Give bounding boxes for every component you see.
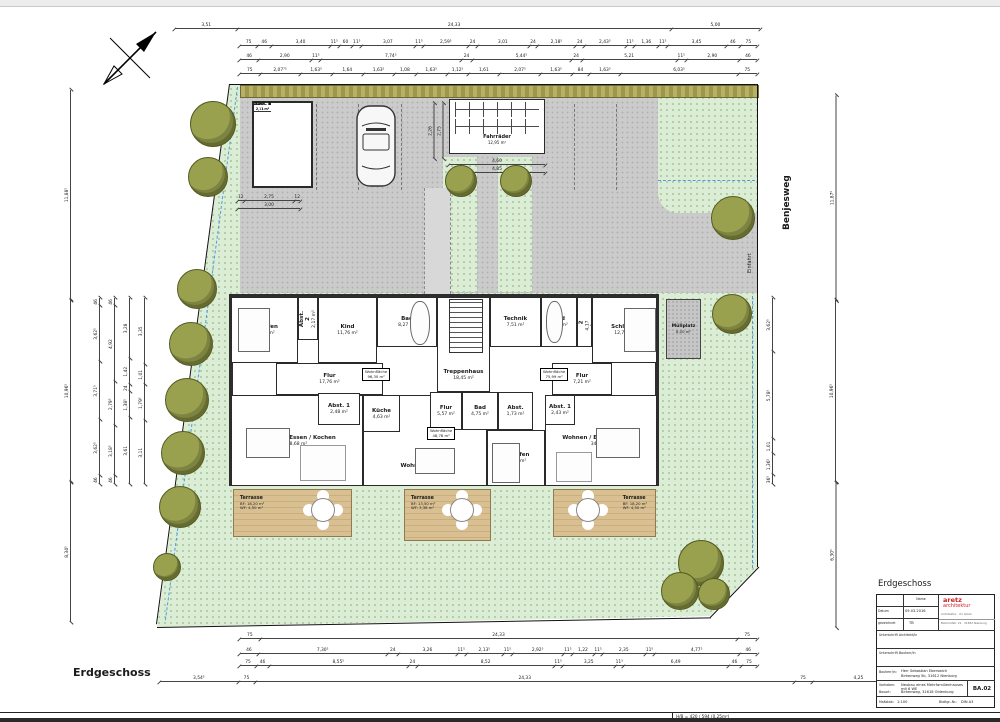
dimension-value: 75: [794, 676, 812, 683]
dimension-value: 1,63⁵: [540, 68, 571, 75]
room-area: 18,45 m²: [453, 376, 474, 381]
room: Abst. 2 4,17 m²: [577, 297, 592, 347]
tb-client-value2: Birkenweg 5b, 31612 Nienburg: [901, 674, 957, 678]
living-area-box: Wohnfläche 75,99 m²: [540, 368, 568, 381]
dimension-value: 75: [738, 68, 758, 75]
room-area: 4,75 m²: [471, 412, 489, 417]
furniture-item: [246, 428, 290, 458]
dimension-value: 7,74⁵: [320, 54, 461, 61]
terrace: Terrasse BF: 18,20 m² WF: 4,50 m²: [233, 489, 352, 537]
room-label-wrap: Abst. 1,73 m²: [507, 405, 525, 417]
dimension-value: 75: [741, 660, 757, 667]
living-area-value: 48,78 m²: [430, 434, 452, 439]
dimension-value: 11⁵: [311, 54, 320, 61]
boundary-top: [229, 84, 758, 85]
terrace-wf: WF: 4,50 m²: [240, 506, 264, 511]
tb-name-header: Name: [903, 597, 939, 601]
dimension-value: 1,01: [139, 365, 146, 385]
dimension-value: 10,96⁵: [830, 300, 837, 482]
dimension-chain: 2,75: [436, 103, 444, 158]
dimension-chain: 3,111,79⁵1,013,35: [138, 298, 146, 484]
room-label-wrap: Abst. 1 2,48 m²: [328, 403, 350, 415]
dimension-value: 46: [109, 298, 116, 306]
dimension-value: 4,77⁵: [654, 648, 739, 655]
room-label-wrap: Treppenhaus 18,45 m²: [444, 369, 484, 381]
bike-shelter: Fahrräder 12,95 m²: [449, 99, 545, 154]
room-name: Flur: [440, 405, 452, 411]
room: Küche 4,63 m²: [363, 395, 400, 432]
dimension-value: 75: [240, 633, 260, 640]
dimension-value: 1,63⁵: [300, 68, 331, 75]
room-label-wrap: Technik 7,51 m²: [504, 316, 527, 328]
setback-line-patch: [658, 180, 755, 181]
dimension-value: 11⁵: [554, 660, 562, 667]
room: Abst. 1 2,43 m²: [545, 395, 575, 425]
stall-divider-line: [316, 104, 317, 190]
dimension-value: 1,01: [767, 439, 774, 454]
dimension-chain: 463,18⁵2,79⁵4,9246: [108, 298, 116, 484]
room: Abst. 1,73 m²: [498, 392, 533, 430]
dimension-value: 11⁵: [415, 40, 424, 47]
room: Abst. 1 2,48 m²: [318, 393, 360, 425]
room-area: 4,63 m²: [373, 415, 391, 420]
dimension-value: 24,33: [260, 633, 738, 640]
dimension-value: 46: [257, 40, 271, 47]
dimension-chain: 7524,3375: [240, 632, 757, 640]
dimension-value: 8,34⁵: [65, 482, 72, 622]
terrace-table-icon: [576, 498, 600, 522]
title-block-heading: Erdgeschoss: [878, 579, 931, 589]
dimension-value: 2,75: [244, 195, 295, 202]
terrace-table-icon: [311, 498, 335, 522]
dimension-value: 3,11: [139, 421, 146, 484]
dimension-value: 3,26: [398, 648, 457, 655]
dimension-value: 3,45: [667, 40, 726, 47]
tree-icon: [698, 578, 730, 610]
room: Technik 7,51 m²: [490, 297, 541, 347]
dimension-value: 11⁵: [626, 40, 635, 47]
dimension-chain: 3,00: [238, 202, 300, 210]
tb-format-value: DIN A3: [961, 700, 973, 704]
dimension-value: 2,59⁵: [423, 40, 468, 47]
room-name: Abst. 1: [549, 404, 571, 410]
bike-row-icons: [455, 119, 539, 134]
dimension-value: 2,79⁵: [109, 382, 116, 426]
dimension-chain: 3,5124,335,00: [175, 22, 760, 30]
furniture-item: [415, 448, 455, 474]
dimension-value: 2,35: [602, 648, 645, 655]
tb-date-label: Datum: [878, 609, 889, 613]
tb-client-row: Bauherr/in: Herr Sebastian Eberswich Bir…: [877, 667, 995, 681]
plan-caption: Erdgeschoss: [73, 666, 151, 679]
dimension-value: 11⁵: [677, 54, 686, 61]
dimension-value: 3,00: [238, 203, 300, 210]
dimension-value: 1,63⁵: [363, 68, 394, 75]
dimension-value: 46: [109, 476, 116, 484]
dimension-value: 12: [294, 195, 300, 202]
tb-line: [877, 618, 939, 619]
logo-text-2: architektur: [943, 604, 970, 610]
room-area: 7,21 m²: [573, 380, 591, 385]
dimension-value: 3,62⁵: [94, 420, 101, 476]
dimension-value: 6,30⁵: [830, 482, 837, 627]
room-area: 5,57 m²: [437, 412, 455, 417]
dimension-value: 24: [408, 660, 418, 667]
dimension-value: 2,92⁵: [512, 648, 564, 655]
dimension-value: 3,62⁵: [94, 306, 101, 362]
walkway-edge: [424, 188, 425, 294]
dimension-value: 60: [339, 40, 353, 47]
dimension-chain: 10,96⁵: [64, 300, 72, 482]
dimension-value: 1,63⁵: [589, 68, 620, 75]
room: Kind 11,76 m²: [318, 297, 377, 363]
dimension-chain: 463,62⁵3,71⁵3,62⁵46: [93, 298, 101, 484]
storage-unit-area: 2,11 m²: [256, 108, 269, 112]
dimension-value: 3,54⁵: [160, 676, 238, 683]
dimension-value: 46: [94, 298, 101, 306]
title-block-table: Name Datum 09.03.2016 gezeichnet TB aret…: [876, 594, 995, 708]
tree-icon: [711, 196, 755, 240]
room-area: 4,17 m²: [586, 314, 592, 330]
tb-sig1-label: Unterschrift Architekt/in: [879, 633, 917, 637]
terrace-info: Terrasse BF: 18,20 m² WF: 4,50 m²: [623, 496, 647, 511]
driveway-label: Einfahrt: [747, 233, 753, 273]
dimension-value: 1,38⁵: [124, 392, 131, 418]
dimension-value: 46: [256, 660, 269, 667]
dimension-chain: 467,30⁵243,2611⁵2,13⁵11⁵2,92⁵11⁵1,2211⁵2…: [240, 647, 757, 655]
room-name: Flur: [576, 373, 588, 379]
window-bottom-strip: [0, 718, 1000, 722]
dimension-value: 1,42: [124, 359, 131, 385]
tree-icon: [661, 572, 699, 610]
bike-shelter-area: 12,95 m²: [450, 140, 544, 145]
dimension-value: 24,33: [237, 23, 670, 30]
tb-date-value: 09.03.2016: [905, 609, 926, 613]
dimension-chain: 8,34⁵: [64, 482, 72, 622]
room-area: 11,76 m²: [337, 331, 358, 336]
tree-icon: [445, 165, 477, 197]
dimension-value: 11,87⁵: [830, 95, 837, 300]
storage-block: Abst. 1 2,11 m² Abst. 2 2,11 m² Abst. 3 …: [252, 101, 313, 188]
logo-subline: Architektur · Ihr Glück: [941, 613, 972, 616]
tb-line: [877, 606, 939, 607]
dimension-chain: 75463,4011⁵6011⁵3,0711⁵2,59⁵243,01242,18…: [240, 39, 757, 47]
storage-unit: Abst. 6 2,11 m²: [254, 103, 271, 111]
dimension-value: 6,49: [623, 660, 728, 667]
tb-line: [903, 595, 904, 631]
dimension-value: 24: [387, 648, 398, 655]
tree-icon: [159, 486, 201, 528]
room-name: Abst. 2: [577, 314, 585, 330]
dimension-value: 4,92: [109, 306, 116, 383]
furniture-item: [624, 308, 656, 352]
dimension-value: 3,71⁵: [94, 362, 101, 420]
dimension-value: 75: [240, 40, 257, 47]
room-name: Technik: [504, 316, 527, 322]
dimension-value: 5,00: [671, 23, 760, 30]
dimension-value: 3,61: [124, 418, 131, 484]
dimension-value: 1,36: [634, 40, 658, 47]
stall-divider-line: [401, 104, 402, 190]
room-area: 1,73 m²: [507, 412, 525, 417]
furniture-item: [410, 301, 430, 345]
dimension-value: 75: [240, 68, 260, 75]
room-name: Abst. 1: [328, 403, 350, 409]
dimension-chain: 3,54⁵7524,33754,25: [160, 675, 905, 683]
tree-icon: [161, 431, 205, 475]
dimension-value: 1,63⁵: [416, 68, 447, 75]
furniture-item: [238, 308, 270, 352]
page-footer-line: [0, 712, 1000, 713]
terrace-wf: WF: 3,38 m²: [411, 506, 435, 511]
tb-sig2-label: Unterschrift Bauherr/in: [879, 651, 916, 655]
tb-client-label: Bauherr/in:: [879, 670, 897, 674]
dimension-chain: 10,96⁵: [829, 300, 837, 482]
room: Abst. 2 2,17 m²: [298, 297, 318, 340]
room-label-wrap: Abst. 2 2,17 m²: [299, 310, 317, 328]
entrance-walkway: [424, 188, 450, 295]
tree-icon: [188, 157, 228, 197]
tree-icon: [177, 269, 217, 309]
dimension-value: 5,78⁵: [767, 352, 774, 439]
dimension-value: 11⁵: [563, 648, 572, 655]
room-label-wrap: Flur 5,57 m²: [437, 405, 455, 417]
dimension-value: 8,52: [417, 660, 554, 667]
dimension-value: 1,79⁵: [139, 385, 146, 421]
dimension-chain: 122,7512: [238, 194, 300, 202]
room-label-wrap: Flur 7,21 m²: [573, 373, 591, 385]
dimension-value: 46: [728, 660, 741, 667]
room-area: 2,17 m²: [312, 310, 317, 328]
floor-plan-sheet: Abst. 1 2,11 m² Abst. 2 2,11 m² Abst. 3 …: [0, 0, 1000, 722]
living-area-value: 96,30 m²: [365, 375, 387, 380]
room-name: Abst.: [507, 405, 523, 411]
tb-line: [939, 619, 995, 620]
furniture-item: [596, 428, 640, 458]
furniture-item: [492, 443, 520, 483]
dimension-chain: 462,9011⁵7,74⁵245,44⁵245,2111⁵2,9046: [240, 53, 757, 61]
dimension-chain: 752,07⁷⁵1,63⁵1,641,63⁵1,081,63⁵1,12⁵1,61…: [240, 67, 757, 75]
dimension-value: 1,61: [468, 68, 499, 75]
tb-project-row: Vorhaben: Neubau eines Mehrfamilienhause…: [877, 681, 995, 697]
dimension-value: 75: [238, 676, 256, 683]
furniture-item: [556, 452, 592, 482]
tree-icon: [712, 294, 752, 334]
tree-icon: [165, 378, 209, 422]
dimension-chain: 36⁵1,36⁵1,015,78⁵3,62⁵: [766, 298, 774, 484]
dimension-value: 1,22: [572, 648, 593, 655]
room-label-wrap: Abst. 1 2,43 m²: [549, 404, 571, 416]
logo-address: Bahnhofstr. 21 · 31582 Nienburg: [941, 622, 987, 625]
terrace: Terrasse BF: 13,50 m² WF: 3,38 m²: [404, 489, 491, 541]
terrace-info: Terrasse BF: 13,50 m² WF: 3,38 m²: [411, 496, 435, 511]
dimension-chain: 11,88⁵: [64, 90, 72, 300]
dimension-chain: 2,26: [427, 103, 435, 158]
tb-project-label: Vorhaben:: [879, 683, 895, 687]
tb-signature-client: Unterschrift Bauherr/in: [877, 649, 995, 667]
dimension-value: 2,07⁷⁵: [260, 68, 301, 75]
dimension-value: 8,55⁵: [269, 660, 408, 667]
room-name: Küche: [372, 408, 391, 414]
room-name: Treppenhaus: [444, 369, 484, 375]
room-area: 2,43 m²: [551, 411, 569, 416]
dimension-value: 24: [571, 54, 582, 61]
tb-format-label: Blattgr.-Nr.:: [939, 700, 957, 704]
terrace: Terrasse BF: 18,20 m² WF: 4,50 m²: [553, 489, 656, 537]
dimension-value: 3,40: [271, 40, 330, 47]
north-arrow-icon: [98, 26, 162, 90]
room-label-wrap: Kind 11,76 m²: [337, 324, 358, 336]
dimension-value: 75: [737, 633, 757, 640]
tree-icon: [500, 165, 532, 197]
dimension-value: 2,18⁵: [537, 40, 575, 47]
dimension-value: 46: [240, 54, 258, 61]
dimension-value: 11⁵: [645, 648, 654, 655]
dimension-value: 3,28: [124, 298, 131, 359]
dimension-value: 11⁵: [615, 660, 623, 667]
furniture-item: [546, 301, 563, 343]
terrace-wf: WF: 4,50 m²: [623, 506, 647, 511]
dimension-value: 10,96⁵: [65, 300, 72, 482]
dimension-value: 3,07: [361, 40, 415, 47]
dimension-value: 3,18⁵: [109, 426, 116, 476]
room: Bad 4,75 m²: [462, 392, 498, 430]
tb-drawn-label: gezeichnet: [878, 621, 896, 625]
dimension-value: 1,36⁵: [767, 454, 774, 475]
room-area: 17,76 m²: [319, 380, 340, 385]
tb-client-value: Herr Sebastian Eberswich: [901, 669, 947, 673]
waste-area-size: 8,00 m²: [676, 329, 691, 334]
dimension-value: 46: [240, 648, 258, 655]
tb-left-grid: Name Datum 09.03.2016 gezeichnet TB: [877, 595, 939, 631]
dimension-value: 5,21: [582, 54, 677, 61]
tree-icon: [190, 101, 236, 147]
dimension-value: 46: [739, 54, 757, 61]
dimension-value: 3,51: [175, 23, 237, 30]
dimension-value: 1,12⁵: [447, 68, 468, 75]
terrace-info: Terrasse BF: 18,20 m² WF: 4,50 m²: [240, 496, 264, 511]
dimension-value: 2,90: [686, 54, 739, 61]
dimension-value: 24: [529, 40, 538, 47]
tb-drawn-value: TB: [909, 621, 914, 625]
dimension-value: 36⁵: [767, 475, 774, 484]
setback-line-right: [752, 296, 753, 568]
dimension-value: 6,03⁵: [620, 68, 737, 75]
tb-scale-label: Maßstab:: [879, 700, 894, 704]
room-area: 2,48 m²: [330, 410, 348, 415]
dimension-value: 11⁵: [352, 40, 361, 47]
living-area-box: Wohnfläche 48,78 m²: [427, 427, 455, 440]
dimension-value: 2,90: [258, 54, 311, 61]
dimension-value: 24: [468, 40, 477, 47]
tb-logo-cell: aretz architektur Architektur · Ihr Glüc…: [939, 595, 995, 631]
tb-site-value: Birkenweg, 31618 Oldenburg: [901, 690, 954, 694]
furniture-item: [300, 445, 346, 481]
dimension-value: 3,35: [139, 298, 146, 365]
dimension-chain: 75468,55⁵248,5211⁵3,2511⁵6,494675: [240, 659, 757, 667]
window-top-strip: [0, 0, 1000, 7]
dimension-value: 5,44⁵: [472, 54, 571, 61]
tree-icon: [169, 322, 213, 366]
dimension-value: 1,64: [332, 68, 363, 75]
living-area-value: 75,99 m²: [543, 375, 565, 380]
walkway-edge: [450, 188, 451, 294]
room-area: 7,51 m²: [507, 323, 525, 328]
bike-row-icons: [455, 102, 539, 117]
dimension-value: 46: [726, 40, 740, 47]
dimension-value: 2,26: [428, 103, 435, 158]
tb-scale-row: Maßstab: 1:100 Blattgr.-Nr.: DIN A3: [877, 697, 995, 708]
room-label-wrap: Flur 17,76 m²: [319, 373, 340, 385]
dimension-value: 2,75: [437, 103, 444, 158]
room: Flur 5,57 m²: [430, 392, 462, 430]
dimension-value: 11⁵: [330, 40, 339, 47]
dimension-value: 46: [94, 476, 101, 484]
dimension-value: 24: [575, 40, 584, 47]
dimension-chain: 3,611,38⁵241,423,28: [123, 298, 131, 484]
tb-signature-architect: Unterschrift Architekt/in: [877, 631, 995, 649]
tb-site-label: Bauort:: [879, 690, 891, 694]
boundary-right: [757, 84, 758, 567]
waste-area: Müllplatz 8,00 m²: [666, 299, 701, 359]
dimension-value: 11⁵: [503, 648, 512, 655]
dimension-value: 3,25: [562, 660, 615, 667]
dimension-value: 11⁵: [658, 40, 667, 47]
tb-scale-value: 1:100: [897, 700, 907, 704]
room-name: Kind: [340, 324, 354, 330]
dimension-value: 75: [740, 40, 757, 47]
dimension-value: 2,43⁵: [584, 40, 626, 47]
dimension-value: 84: [572, 68, 590, 75]
furniture-item: [449, 299, 483, 353]
room-name: Abst. 2: [299, 310, 311, 328]
dimension-value: 7,30⁵: [258, 648, 388, 655]
room-name: Bad: [474, 405, 486, 411]
dimension-value: 2,13⁵: [466, 648, 503, 655]
title-block: Erdgeschoss Name Datum 09.03.2016 gezeic…: [874, 578, 997, 712]
dimension-value: 75: [240, 660, 256, 667]
tree-icon: [153, 553, 181, 581]
dimension-value: 24,33: [255, 676, 794, 683]
car-icon: [354, 104, 398, 188]
dimension-value: 1,08: [394, 68, 415, 75]
dimension-value: 11⁵: [594, 648, 603, 655]
dimension-value: 3,01: [477, 40, 529, 47]
room-label-wrap: Abst. 2 4,17 m²: [577, 314, 592, 330]
room-label-wrap: Küche 4,63 m²: [372, 408, 391, 420]
dimension-chain: 6,30⁵: [829, 482, 837, 627]
dimension-value: 11⁵: [457, 648, 466, 655]
stall-divider-line: [616, 104, 617, 190]
living-area-box: Wohnfläche 96,30 m²: [362, 368, 390, 381]
dimension-chain: 11,87⁵: [829, 95, 837, 300]
street-name-label: Benjesweg: [782, 180, 792, 230]
dimension-value: 24: [124, 385, 131, 392]
room-label-wrap: Bad 4,75 m²: [471, 405, 489, 417]
tb-sheet-number: BA.02: [967, 681, 996, 697]
hedge-strip: [240, 85, 759, 98]
dimension-value: 2,07⁵: [499, 68, 540, 75]
terrace-table-icon: [450, 498, 474, 522]
room-name: Flur: [323, 373, 335, 379]
lawn-patch-top-right: [658, 95, 757, 213]
dimension-value: 24: [461, 54, 472, 61]
dimension-value: 11,88⁵: [65, 90, 72, 300]
dimension-value: 46: [739, 648, 757, 655]
stall-divider-line: [574, 104, 575, 190]
dimension-value: 3,62⁵: [767, 298, 774, 352]
